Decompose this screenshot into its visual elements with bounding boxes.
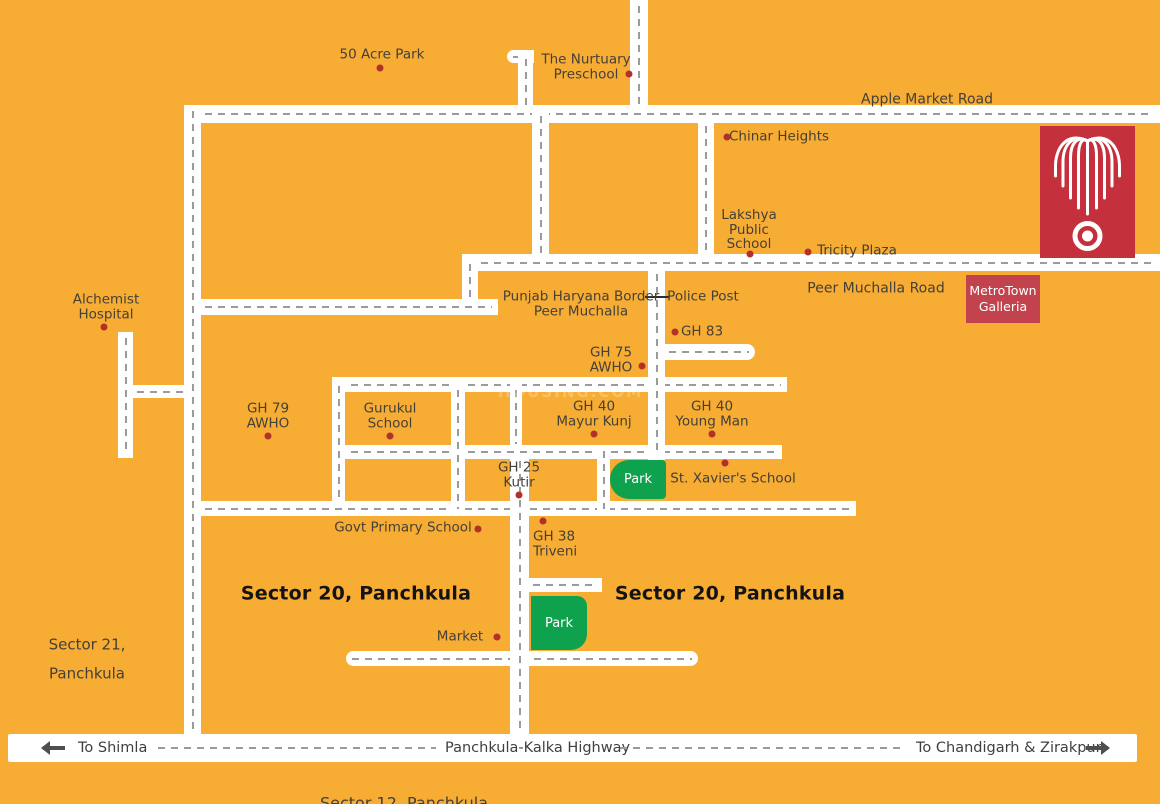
- landmark-dot: [724, 134, 731, 141]
- label-gurukul-school: Gurukul School: [364, 401, 417, 430]
- landmark-dot: [591, 431, 598, 438]
- willow-fountain-logo-icon: [1040, 126, 1135, 258]
- label-govt-primary-school: Govt Primary School: [334, 521, 472, 536]
- label-market: Market: [437, 630, 483, 645]
- landmark-dot: [639, 363, 646, 370]
- label-gh-83: GH 83: [681, 325, 723, 340]
- highway-bar: To Shimla Panchkula-Kalka Highway To Cha…: [8, 734, 1137, 762]
- label-sector-12: Sector 12, Panchkula: [320, 794, 488, 804]
- road-sector-boundary: [184, 105, 201, 748]
- road-apple-market: [186, 105, 1160, 123]
- landmark-dot: [101, 324, 108, 331]
- label-lakshya-public-school: Lakshya Public School: [721, 208, 776, 252]
- road-alchemist: [118, 332, 133, 458]
- road: [451, 384, 465, 515]
- label-tricity-plaza: Tricity Plaza: [817, 244, 897, 259]
- label-50-acre-park: 50 Acre Park: [340, 48, 425, 63]
- road: [518, 53, 533, 111]
- road: [650, 344, 755, 360]
- landmark-dot: [494, 634, 501, 641]
- label-gh-40-young-man: GH 40 Young Man: [675, 399, 748, 428]
- park-label: Park: [624, 472, 652, 487]
- label-sector-20-left: Sector 20, Panchkula: [241, 584, 471, 605]
- label-alchemist-hospital: Alchemist Hospital: [73, 292, 140, 321]
- landmark-dot: [672, 329, 679, 336]
- label-sector-20-right: Sector 20, Panchkula: [615, 584, 845, 605]
- landmark-dot: [805, 249, 812, 256]
- label-punjab-haryana-border: Punjab Haryana Border Peer Muchalla: [503, 289, 660, 318]
- label-peer-muchalla-road: Peer Muchalla Road: [807, 281, 944, 296]
- park-block: Park: [531, 596, 587, 650]
- label-gh-75-awho: GH 75 AWHO: [590, 345, 633, 374]
- galleria-line2: Galleria: [979, 299, 1027, 315]
- highway-to-chandigarh: To Chandigarh & Zirakpur: [916, 740, 1102, 756]
- arrow-right-icon: [1086, 746, 1108, 750]
- label-nurtuary-preschool: The Nurtuary Preschool: [541, 52, 630, 81]
- label-sector-21: Sector 21, Panchkula: [49, 631, 126, 688]
- arrow-left-icon: [43, 746, 65, 750]
- landmark-dot: [377, 65, 384, 72]
- label-gh-79-awho: GH 79 AWHO: [247, 401, 290, 430]
- park-label: Park: [545, 616, 573, 631]
- park-block: Park: [610, 460, 666, 499]
- highway-dashes: [158, 747, 436, 749]
- developer-logo-block: [1040, 126, 1135, 258]
- label-gh-38-triveni: GH 38 Triveni: [533, 529, 577, 558]
- label-chinar-heights: Chinar Heights: [729, 130, 829, 145]
- landmark-dot: [265, 433, 272, 440]
- highway-to-shimla: To Shimla: [78, 740, 147, 756]
- label-st-xaviers-school: St. Xavier's School: [670, 472, 795, 487]
- highway-dashes: [620, 747, 901, 749]
- road: [462, 258, 478, 306]
- site-location-map: HOUSING.COM MetroTown Galleria 50 Acre P…: [0, 0, 1160, 804]
- landmark-dot: [626, 71, 633, 78]
- highway-name: Panchkula-Kalka Highway: [445, 740, 630, 756]
- label-gh-25-kutir: GH 25 Kutir: [498, 460, 540, 489]
- landmark-dot: [387, 433, 394, 440]
- landmark-dot: [475, 526, 482, 533]
- road: [630, 0, 648, 112]
- label-gh-40-mayur-kunj: GH 40 Mayur Kunj: [556, 399, 631, 428]
- road: [532, 110, 549, 260]
- landmark-dot: [747, 251, 754, 258]
- road: [186, 299, 498, 315]
- label-police-post: Police Post: [667, 290, 739, 305]
- road: [332, 380, 345, 508]
- road: [332, 445, 782, 459]
- metrotown-galleria-marker: MetroTown Galleria: [966, 275, 1040, 323]
- road: [527, 578, 602, 592]
- landmark-dot: [516, 492, 523, 499]
- label-apple-market-road: Apple Market Road: [861, 92, 993, 107]
- galleria-line1: MetroTown: [969, 283, 1036, 299]
- landmark-dot: [540, 518, 547, 525]
- road: [698, 120, 714, 260]
- landmark-dot: [722, 460, 729, 467]
- road: [510, 455, 529, 748]
- landmark-dot: [709, 431, 716, 438]
- road: [597, 445, 610, 515]
